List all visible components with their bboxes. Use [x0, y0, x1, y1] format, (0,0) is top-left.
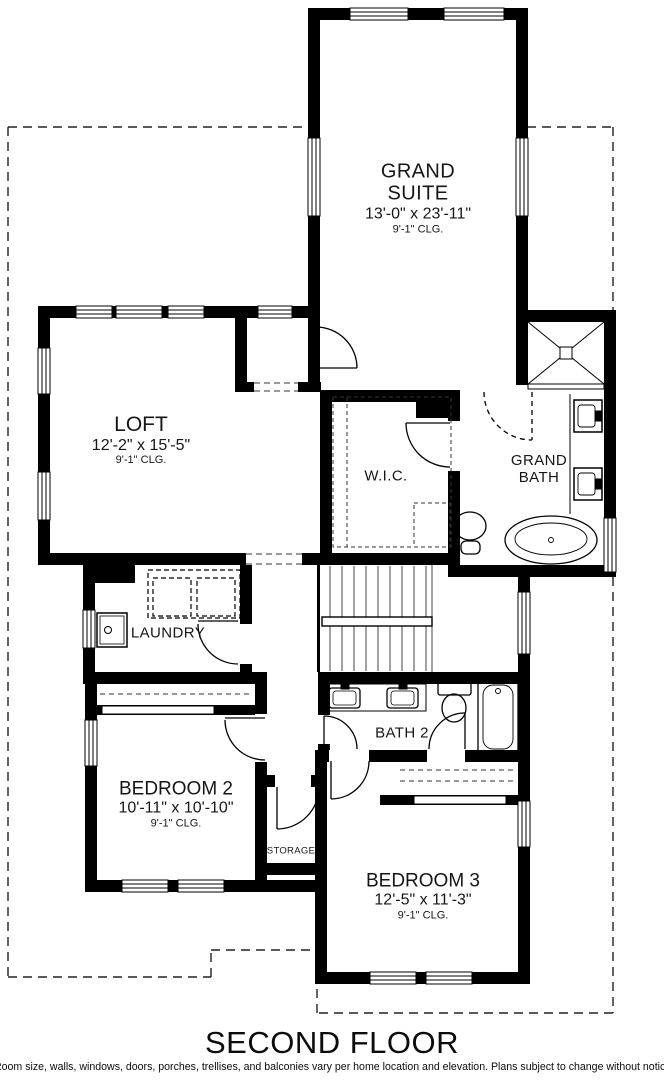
- bath2-toilet: [438, 683, 471, 722]
- room-name: LAUNDRY: [131, 626, 205, 643]
- room-name: GRAND: [511, 453, 567, 470]
- room-dimensions: 12'-2" x 15'-5": [92, 437, 190, 455]
- grand-suite-door: [316, 327, 357, 368]
- room-dimensions: 12'-5" x 11'-3": [366, 892, 480, 910]
- room-ceiling-height: 9'-1" CLG.: [366, 909, 480, 921]
- floor-title: SECOND FLOOR: [205, 1025, 459, 1061]
- room-label-grand-suite: GRAND SUITE 13'-0" x 23'-11" 9'-1" CLG.: [365, 161, 471, 236]
- room-label-loft: LOFT 12'-2" x 15'-5" 9'-1" CLG.: [92, 413, 190, 467]
- disclaimer-text: *Room size, walls, windows, doors, porch…: [0, 1061, 664, 1073]
- room-dimensions: 13'-0" x 23'-11": [365, 205, 471, 223]
- room-name: SUITE: [365, 183, 471, 205]
- room-label-bedroom2: BEDROOM 2 10'-11" x 10'-10" 9'-1" CLG.: [118, 778, 233, 829]
- room-dimensions: 10'-11" x 10'-10": [118, 800, 233, 818]
- room-label-bedroom3: BEDROOM 3 12'-5" x 11'-3" 9'-1" CLG.: [366, 870, 480, 921]
- floor-plan-page: GRAND SUITE 13'-0" x 23'-11" 9'-1" CLG. …: [0, 0, 664, 1080]
- room-label-grand-bath: GRAND BATH: [511, 453, 567, 487]
- room-ceiling-height: 9'-1" CLG.: [118, 817, 233, 829]
- bath2-vanity: [322, 683, 426, 711]
- floorplan-drawing: [0, 0, 664, 1080]
- bedroom3-door: [331, 761, 369, 799]
- room-name: BATH: [511, 470, 567, 487]
- room-name: LOFT: [92, 413, 190, 437]
- room-label-bath2: BATH 2: [375, 726, 429, 743]
- room-name: GRAND: [365, 161, 471, 183]
- room-ceiling-height: 9'-1" CLG.: [92, 455, 190, 467]
- room-label-wic: W.I.C.: [364, 469, 407, 486]
- room-name: BATH 2: [375, 726, 429, 743]
- shower: [528, 322, 604, 389]
- room-label-laundry: LAUNDRY: [131, 626, 205, 643]
- bath2-east-door: [429, 713, 465, 749]
- room-label-storage: STORAGE: [267, 847, 315, 858]
- storage-door: [277, 787, 319, 829]
- grand-bath-tub: [505, 516, 597, 564]
- wic-door: [406, 423, 450, 467]
- grand-bath-vanity: [570, 394, 602, 514]
- bath2-tub: [478, 680, 518, 753]
- room-name: W.I.C.: [364, 469, 407, 486]
- room-name: STORAGE: [267, 847, 315, 858]
- stairs: [322, 565, 432, 672]
- room-name: BEDROOM 2: [118, 778, 233, 799]
- grand-bath-door: [484, 392, 532, 440]
- room-name: BEDROOM 3: [366, 870, 480, 891]
- room-ceiling-height: 9'-1" CLG.: [365, 223, 471, 235]
